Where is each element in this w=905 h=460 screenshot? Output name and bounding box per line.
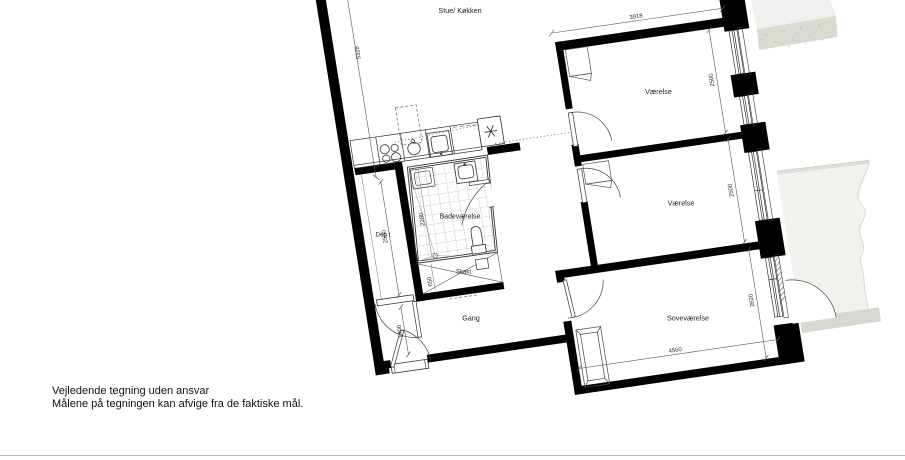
svg-text:Værelse: Værelse [645,87,672,96]
svg-text:Soveværelse: Soveværelse [667,313,709,322]
svg-text:Skakt: Skakt [456,269,471,275]
svg-text:Målene på tegningen kan afvige: Målene på tegningen kan afvige fra de fa… [52,398,303,410]
svg-text:Vejledende tegning uden ansvar: Vejledende tegning uden ansvar [52,385,210,397]
svg-text:Gang: Gang [462,314,480,323]
svg-text:Værelse: Værelse [668,198,695,207]
svg-text:Badeværelse: Badeværelse [440,214,481,221]
svg-text:Stue/ Køkken: Stue/ Køkken [438,6,481,15]
svg-text:Dep.t: Dep.t [376,232,391,239]
